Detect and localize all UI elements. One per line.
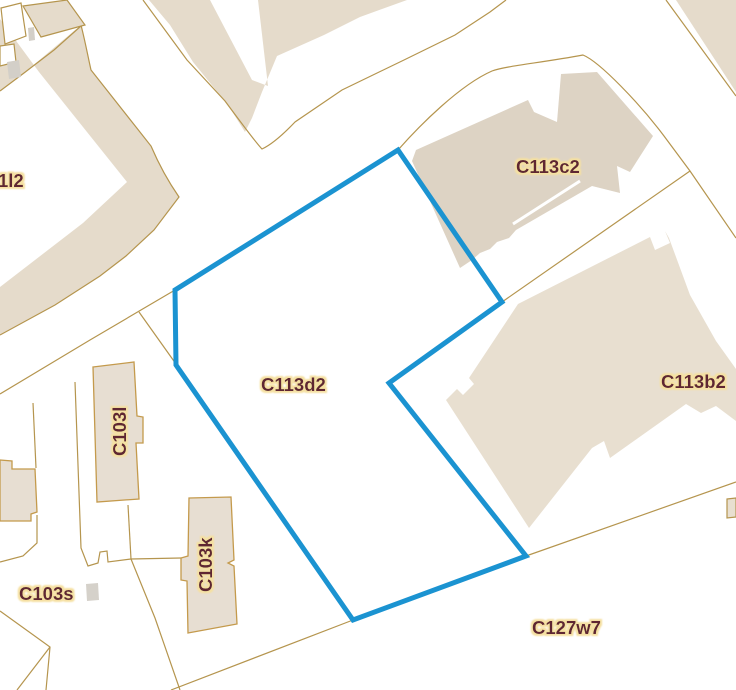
svg-text:C113d2: C113d2 [261,374,326,395]
svg-text:C127w7: C127w7 [532,617,601,638]
svg-text:C103k: C103k [195,537,216,592]
svg-text:1l2: 1l2 [0,170,24,191]
svg-text:C103s: C103s [19,583,74,604]
svg-text:C113c2: C113c2 [516,156,580,177]
svg-text:C103l: C103l [109,407,130,456]
svg-text:C113b2: C113b2 [661,371,726,392]
